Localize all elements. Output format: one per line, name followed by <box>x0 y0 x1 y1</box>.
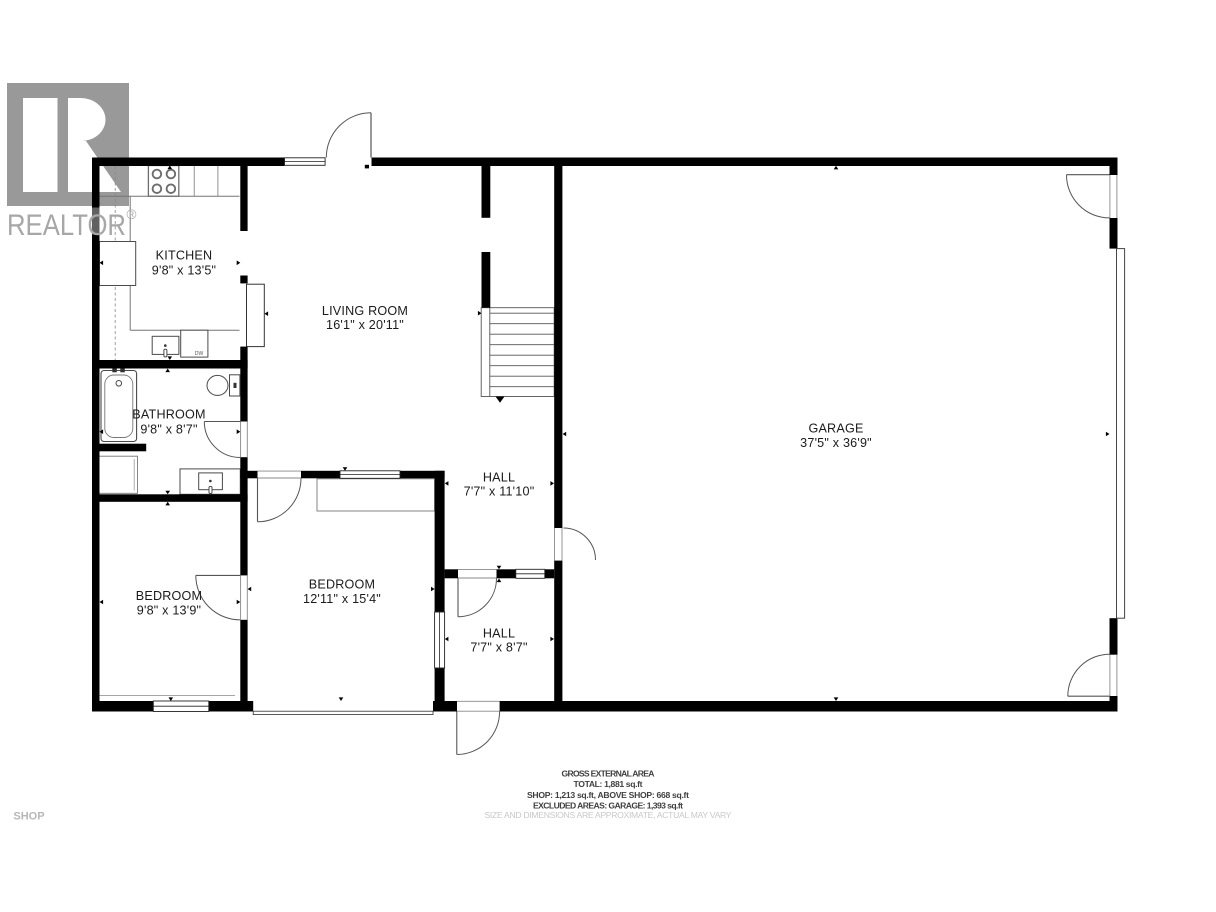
svg-text:SIZE AND DIMENSIONS ARE APPROX: SIZE AND DIMENSIONS ARE APPROXIMATE, ACT… <box>485 810 732 820</box>
svg-text:KITCHEN: KITCHEN <box>156 249 213 263</box>
svg-text:BATHROOM: BATHROOM <box>132 408 205 422</box>
svg-text:7'7" x 8'7": 7'7" x 8'7" <box>470 641 527 655</box>
svg-text:GROSS EXTERNAL AREA: GROSS EXTERNAL AREA <box>562 768 655 778</box>
svg-text:DW: DW <box>195 351 204 357</box>
svg-text:REALTOR: REALTOR <box>7 209 126 242</box>
svg-text:BEDROOM: BEDROOM <box>136 589 202 603</box>
svg-text:37'5" x 36'9": 37'5" x 36'9" <box>800 436 872 450</box>
svg-text:7'7" x 11'10": 7'7" x 11'10" <box>464 485 535 499</box>
svg-text:LIVING ROOM: LIVING ROOM <box>322 304 408 318</box>
svg-text:9'8" x 13'9": 9'8" x 13'9" <box>137 604 201 618</box>
svg-text:SHOP: 1,213 sq.ft, ABOVE SHOP:: SHOP: 1,213 sq.ft, ABOVE SHOP: 668 sq.ft <box>527 790 689 800</box>
svg-text:16'1" x 20'11": 16'1" x 20'11" <box>326 318 404 332</box>
svg-text:GARAGE: GARAGE <box>808 422 863 436</box>
svg-text:9'8" x 8'7": 9'8" x 8'7" <box>140 423 197 437</box>
svg-text:BEDROOM: BEDROOM <box>309 578 375 592</box>
svg-text:12'11" x 15'4": 12'11" x 15'4" <box>303 592 381 606</box>
svg-text:HALL: HALL <box>483 627 515 641</box>
svg-text:TOTAL: 1,881 sq.ft: TOTAL: 1,881 sq.ft <box>574 779 643 789</box>
svg-text:9'8" x 13'5": 9'8" x 13'5" <box>152 263 216 277</box>
svg-text:EXCLUDED AREAS: GARAGE: 1,393: EXCLUDED AREAS: GARAGE: 1,393 sq.ft <box>533 801 683 811</box>
svg-text:®: ® <box>127 207 137 222</box>
svg-text:HALL: HALL <box>483 471 515 485</box>
svg-text:SHOP: SHOP <box>13 810 44 822</box>
